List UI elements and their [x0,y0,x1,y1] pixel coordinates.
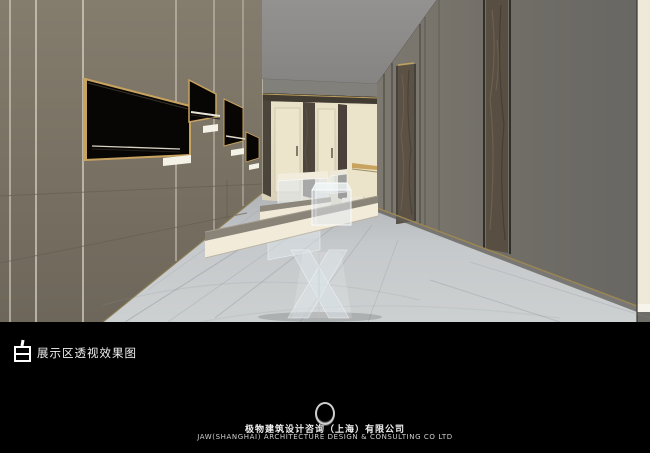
drawing-title-bar: 展示区透视效果图 [0,336,650,366]
stone-column [484,0,510,254]
bronze-pilaster [262,100,271,197]
drawing-title: 展示区透视效果图 [37,345,137,361]
presentation-board: 展示区透视效果图 极物建筑设计咨询（上海）有限公司 JAW(SHANGHAI) … [0,0,650,453]
perspective-rendering [0,0,650,322]
company-footer: 极物建筑设计咨询（上海）有限公司 JAW(SHANGHAI) ARCHITECT… [0,395,650,453]
right-edge-wall-strip [637,0,650,322]
company-name-en: JAW(SHANGHAI) ARCHITECTURE DESIGN & CONS… [0,433,650,441]
stone-column [397,63,415,224]
bai-square-logo-icon [14,340,32,362]
glass-display-cube [312,183,351,225]
